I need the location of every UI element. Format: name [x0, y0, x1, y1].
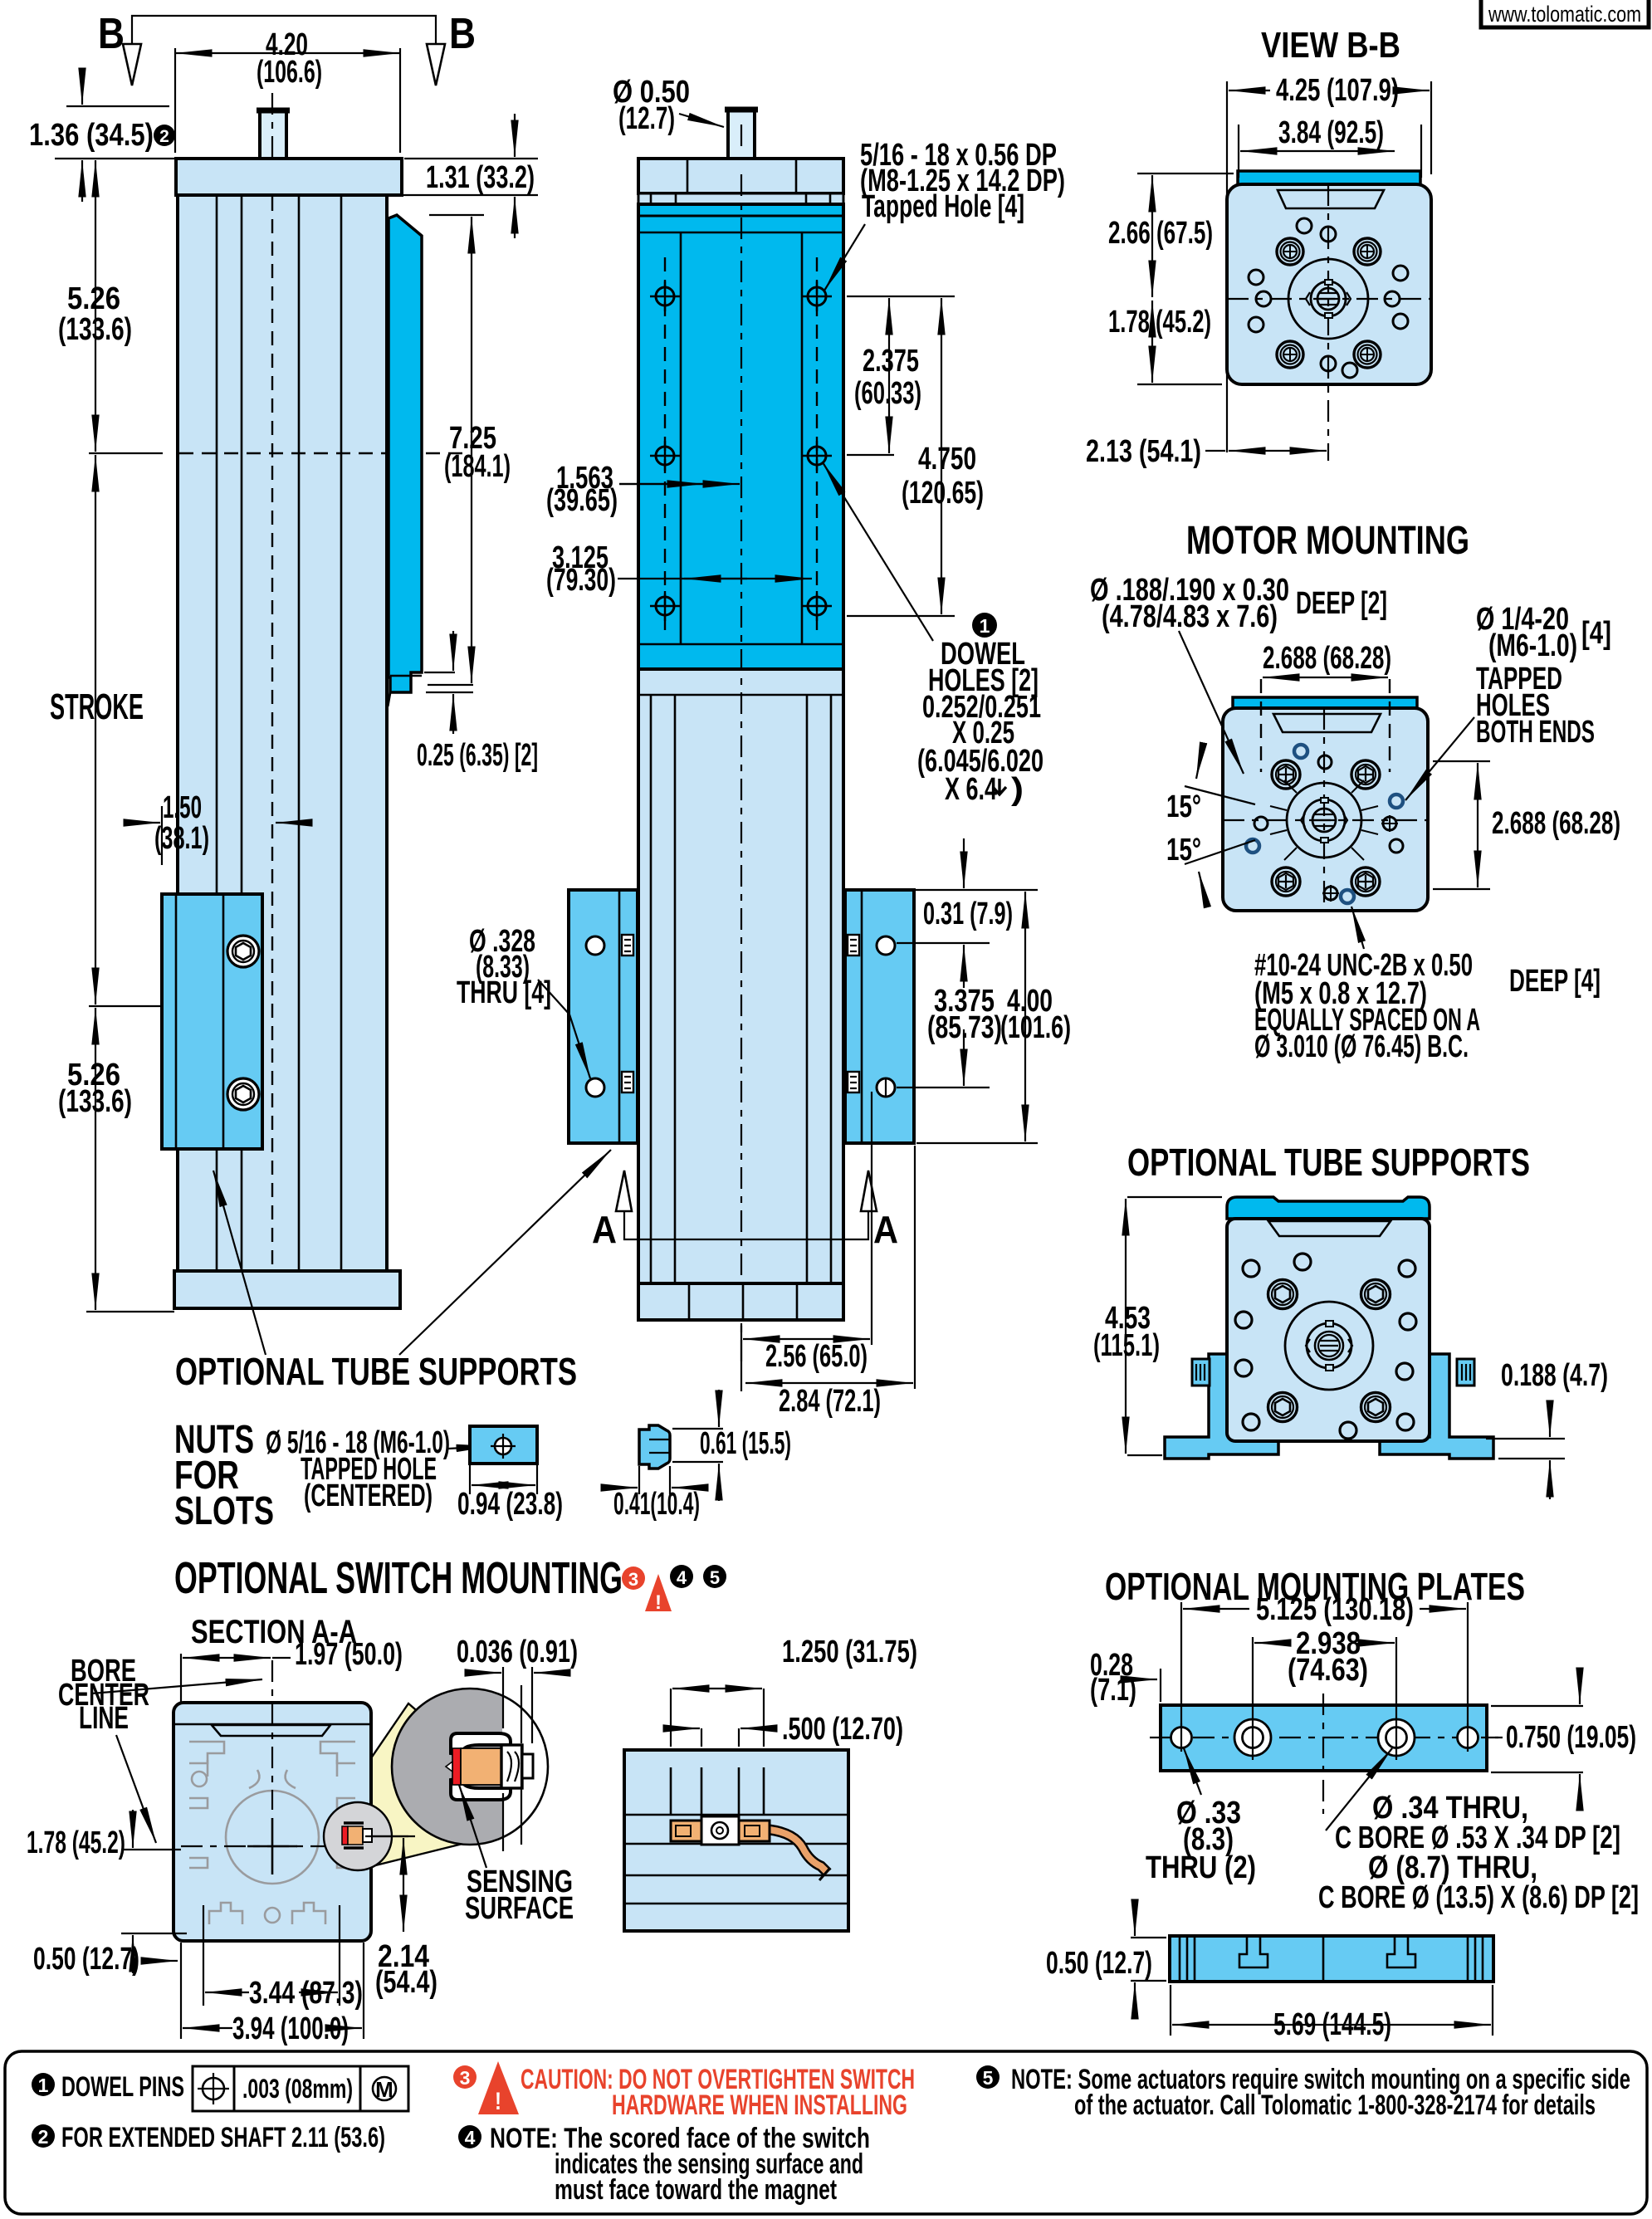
svg-text:C BORE Ø (13.5) X (8.6) DP [2]: C BORE Ø (13.5) X (8.6) DP [2] [1318, 1880, 1639, 1915]
svg-text:SLOTS: SLOTS [174, 1489, 274, 1533]
svg-text:3.84 (92.5): 3.84 (92.5) [1278, 115, 1384, 150]
svg-text:LINE: LINE [79, 1701, 129, 1736]
svg-text:B: B [98, 10, 125, 58]
svg-text:0.41(10.4): 0.41(10.4) [613, 1487, 700, 1522]
svg-text:1.250 (31.75): 1.250 (31.75) [782, 1635, 917, 1669]
svg-text:4: 4 [677, 1567, 687, 1588]
svg-text:www.tolomatic.com: www.tolomatic.com [1488, 2, 1641, 27]
svg-text:A: A [873, 1208, 898, 1251]
svg-text:5.69 (144.5): 5.69 (144.5) [1273, 2007, 1391, 2042]
svg-text:FOR EXTENDED SHAFT 2.11 (53.6): FOR EXTENDED SHAFT 2.11 (53.6) [61, 2122, 385, 2153]
svg-text:5.125 (130.18): 5.125 (130.18) [1256, 1592, 1414, 1627]
svg-text:0.61 (15.5): 0.61 (15.5) [700, 1426, 791, 1461]
svg-text:15°: 15° [1166, 833, 1201, 868]
svg-text:(184.1): (184.1) [444, 449, 511, 484]
svg-text:1.36 (34.5): 1.36 (34.5) [29, 118, 154, 153]
svg-text:HARDWARE WHEN INSTALLING: HARDWARE WHEN INSTALLING [612, 2089, 907, 2121]
svg-text:4.750: 4.750 [918, 442, 976, 477]
svg-text:2.13 (54.1): 2.13 (54.1) [1086, 434, 1201, 469]
svg-text:0.50 (12.7): 0.50 (12.7) [33, 1942, 139, 1977]
svg-text:OPTIONAL TUBE SUPPORTS: OPTIONAL TUBE SUPPORTS [1127, 1141, 1530, 1184]
svg-text:1.31 (33.2): 1.31 (33.2) [426, 160, 535, 195]
svg-text:(M6-1.0): (M6-1.0) [1488, 628, 1577, 663]
svg-text:5: 5 [710, 1567, 720, 1588]
svg-text:!: ! [655, 1591, 662, 1614]
svg-text:SURFACE: SURFACE [465, 1891, 574, 1926]
svg-text:4.25 (107.9): 4.25 (107.9) [1276, 73, 1399, 108]
svg-text:(74.63): (74.63) [1288, 1653, 1368, 1688]
svg-text:0.25 (6.35) [2]: 0.25 (6.35) [2] [417, 738, 538, 773]
svg-text:(4.78/4.83 x 7.6): (4.78/4.83 x 7.6) [1102, 599, 1278, 634]
svg-text:(7.1): (7.1) [1090, 1673, 1136, 1708]
svg-text:VIEW B-B: VIEW B-B [1261, 25, 1400, 66]
svg-text:2.66 (67.5): 2.66 (67.5) [1108, 216, 1213, 251]
svg-text:(120.65): (120.65) [902, 476, 984, 511]
svg-text:STROKE: STROKE [50, 687, 144, 727]
svg-text:0.94 (23.8): 0.94 (23.8) [457, 1487, 563, 1522]
svg-text:(85.73): (85.73) [927, 1010, 1002, 1045]
svg-text:3: 3 [460, 2067, 471, 2089]
svg-text:(54.4): (54.4) [375, 1965, 437, 2000]
svg-text:(115.1): (115.1) [1093, 1328, 1160, 1363]
svg-text:BOTH ENDS: BOTH ENDS [1476, 715, 1595, 750]
svg-text:!: ! [495, 2088, 501, 2115]
svg-text:(106.6): (106.6) [257, 55, 322, 90]
svg-text:5: 5 [983, 2067, 994, 2089]
svg-text:Ø 3.010 (Ø 76.45) B.C.: Ø 3.010 (Ø 76.45) B.C. [1254, 1029, 1469, 1064]
svg-text:MOTOR MOUNTING: MOTOR MOUNTING [1186, 519, 1469, 563]
svg-text:0.036 (0.91): 0.036 (0.91) [457, 1635, 578, 1669]
svg-text:2.84 (72.1): 2.84 (72.1) [779, 1384, 881, 1419]
svg-text:2: 2 [38, 2126, 49, 2148]
svg-text:1: 1 [980, 615, 990, 637]
svg-text:(101.6): (101.6) [1000, 1010, 1071, 1045]
svg-text:Tapped Hole [4]: Tapped Hole [4] [862, 189, 1024, 224]
svg-text:15°: 15° [1166, 789, 1201, 824]
svg-text:[4]: [4] [1581, 616, 1611, 651]
svg-text:2.688 (68.28): 2.688 (68.28) [1263, 641, 1391, 676]
svg-text:0.750 (19.05): 0.750 (19.05) [1506, 1720, 1636, 1755]
svg-text:must face toward the magnet: must face toward the magnet [555, 2174, 837, 2206]
svg-text:(12.7): (12.7) [618, 101, 675, 136]
svg-text:(38.1): (38.1) [154, 821, 209, 856]
svg-text:3: 3 [628, 1569, 638, 1590]
svg-text:(CENTERED): (CENTERED) [304, 1479, 433, 1513]
svg-text:DEEP [4]: DEEP [4] [1509, 964, 1601, 999]
svg-text:.003 (08mm): .003 (08mm) [242, 2074, 353, 2104]
svg-text:0.31 (7.9): 0.31 (7.9) [923, 897, 1013, 931]
svg-text:1.78 (45.2): 1.78 (45.2) [1108, 305, 1211, 340]
svg-text:.500 (12.70): .500 (12.70) [782, 1712, 903, 1747]
svg-text:(39.65): (39.65) [546, 483, 618, 518]
svg-text:1.78 (45.2): 1.78 (45.2) [27, 1826, 125, 1860]
svg-text:0.50 (12.7): 0.50 (12.7) [1046, 1946, 1152, 1981]
svg-text:of the actuator. Call Tolomati: of the actuator. Call Tolomatic 1-800-32… [1074, 2089, 1596, 2121]
svg-text:DEEP [2]: DEEP [2] [1296, 586, 1387, 621]
svg-text:): ) [1011, 772, 1024, 807]
svg-text:2.688 (68.28): 2.688 (68.28) [1492, 806, 1620, 841]
svg-text:3.44 (87.3): 3.44 (87.3) [249, 1976, 363, 2011]
svg-text:1.97 (50.0): 1.97 (50.0) [295, 1637, 403, 1672]
svg-text:OPTIONAL SWITCH MOUNTING: OPTIONAL SWITCH MOUNTING [174, 1553, 623, 1603]
svg-text:(133.6): (133.6) [58, 312, 132, 347]
svg-text:2.56 (65.0): 2.56 (65.0) [765, 1339, 868, 1374]
svg-text:(79.30): (79.30) [546, 563, 616, 598]
svg-text:1.50: 1.50 [163, 790, 202, 825]
svg-text:1: 1 [38, 2075, 49, 2096]
svg-text:B: B [449, 10, 476, 58]
svg-text:(133.6): (133.6) [58, 1084, 132, 1119]
svg-text:THRU [4]: THRU [4] [457, 975, 551, 1010]
svg-text:(60.33): (60.33) [854, 376, 921, 411]
svg-text:M: M [375, 2077, 393, 2102]
svg-text:3.94 (100.0): 3.94 (100.0) [232, 2011, 349, 2046]
svg-text:4: 4 [465, 2127, 476, 2148]
svg-text:A: A [592, 1208, 617, 1251]
svg-text:DOWEL PINS: DOWEL PINS [61, 2071, 184, 2103]
svg-text:THRU (2): THRU (2) [1146, 1850, 1256, 1885]
svg-text:2.375: 2.375 [863, 344, 919, 379]
svg-text:0.188 (4.7): 0.188 (4.7) [1501, 1358, 1608, 1393]
svg-text:X 6.4: X 6.4 [945, 772, 997, 807]
svg-text:2: 2 [159, 127, 169, 146]
svg-text:5.26: 5.26 [67, 281, 120, 316]
svg-text:OPTIONAL TUBE SUPPORTS: OPTIONAL TUBE SUPPORTS [175, 1350, 577, 1393]
